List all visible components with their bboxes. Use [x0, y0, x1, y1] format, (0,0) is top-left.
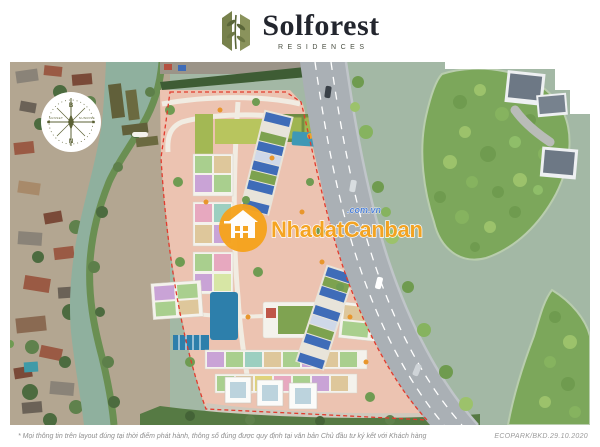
apartment-row-south-1 — [205, 350, 367, 369]
masterplan-aerial-map: B N SUNSET SUNRISE .com.vn NhadatCanban — [10, 62, 590, 425]
watermark-name: NhadatCanban — [271, 217, 423, 242]
compass-sunset-label: SUNSET — [49, 116, 64, 120]
compass-south-label: N — [69, 139, 73, 145]
brand-subtitle: RESIDENCES — [273, 44, 368, 51]
lap-pool — [173, 335, 209, 350]
document-code: ECOPARK/BKD.29.10.2020 — [494, 433, 588, 440]
compass-sunrise-label: SUNRISE — [79, 116, 95, 120]
masterplan-svg: B N SUNSET SUNRISE .com.vn NhadatCanban — [10, 62, 590, 425]
solforest-leaf-logo-icon — [220, 11, 252, 51]
footer: * Mọi thông tin trên layout đúng tại thờ… — [0, 425, 600, 447]
brand-block: Solforest RESIDENCES — [262, 11, 379, 51]
brand-name: Solforest — [262, 11, 379, 41]
compass-rose: B N SUNSET SUNRISE — [41, 92, 101, 152]
watermark-domain: .com.vn — [347, 205, 382, 215]
header: Solforest RESIDENCES — [0, 0, 600, 62]
compass-north-label: B — [69, 103, 74, 109]
disclaimer-text: * Mọi thông tin trên layout đúng tại thờ… — [18, 433, 426, 440]
main-pool — [210, 292, 238, 340]
